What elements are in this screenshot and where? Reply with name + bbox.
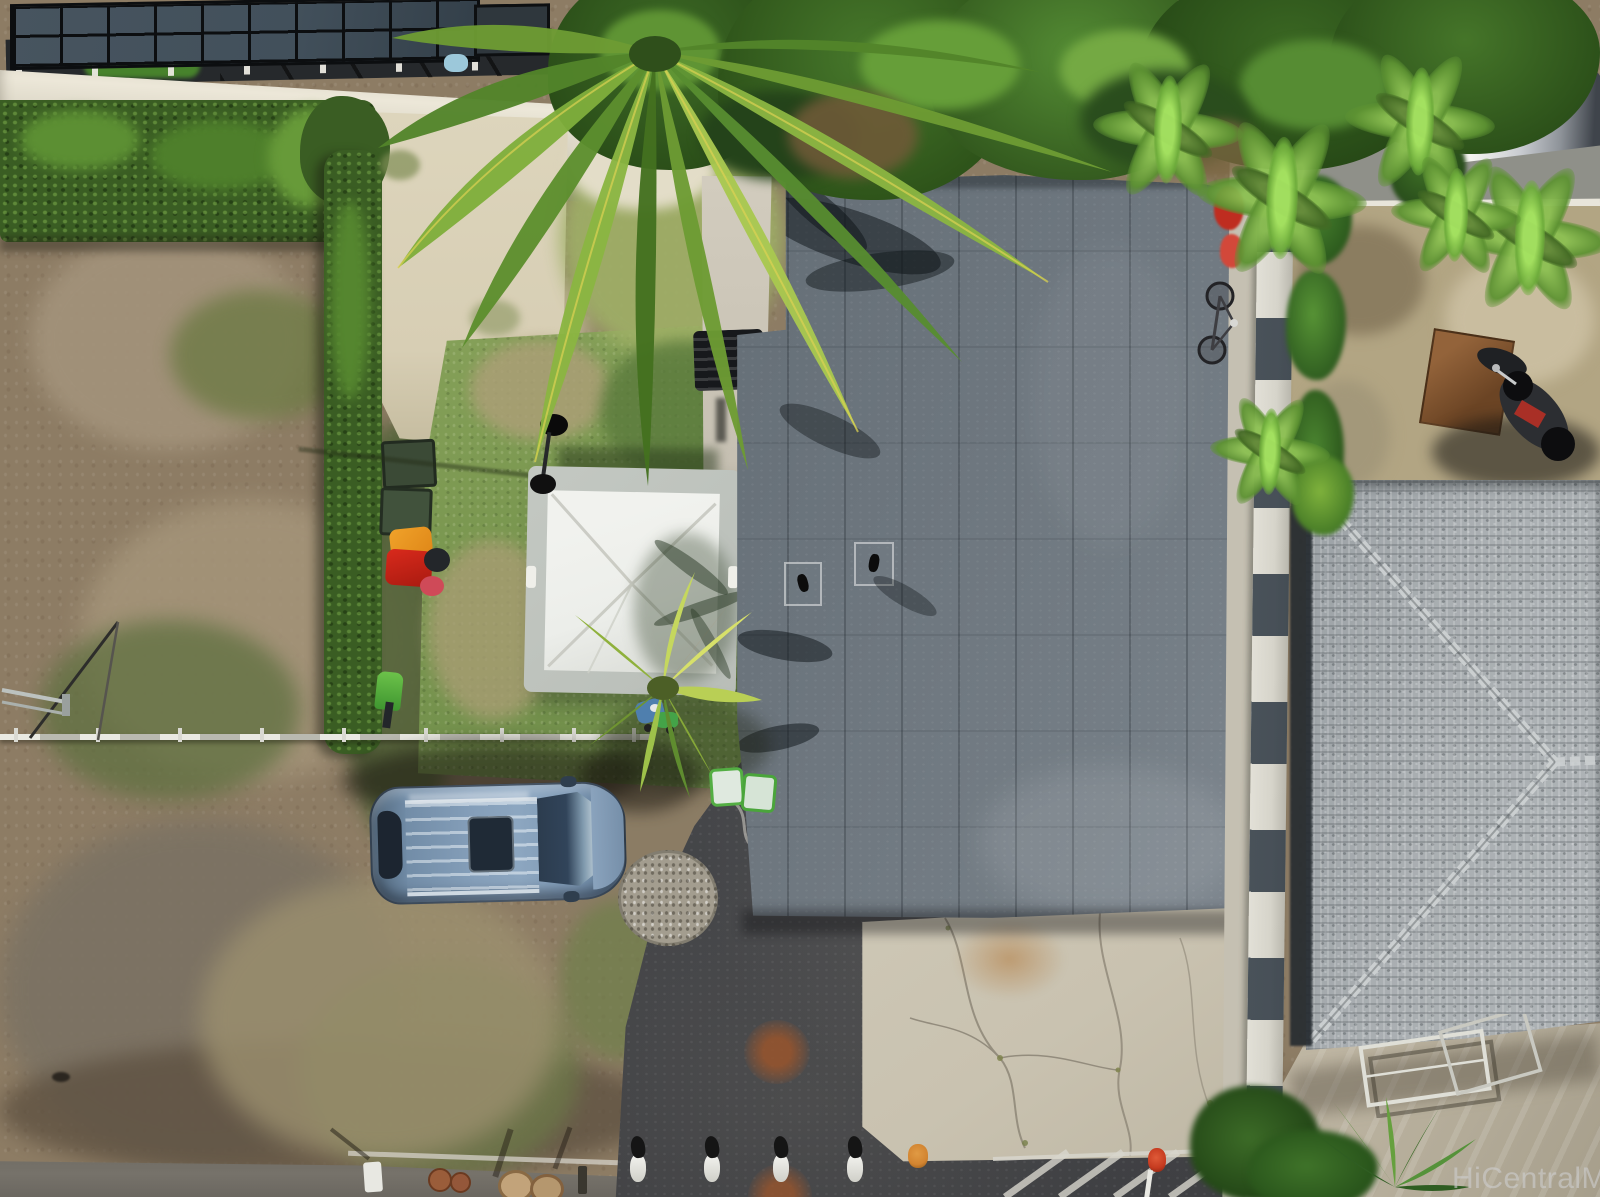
aerial-property-photo: HiCentralMLS — [0, 0, 1600, 1197]
toy-tractor-wheel — [424, 548, 450, 572]
fence-post — [424, 728, 428, 742]
bollard — [847, 1154, 863, 1182]
motorcycle — [1458, 340, 1600, 486]
clay-pot — [450, 1172, 471, 1193]
hedge-highlight — [20, 110, 140, 170]
eave-shadow — [742, 910, 1260, 934]
gravel-patch — [618, 850, 718, 946]
neighbor-shingle-roof — [1306, 480, 1600, 1050]
watermark: HiCentralMLS — [1452, 1162, 1600, 1196]
bollard — [630, 1154, 646, 1182]
car-rear-window — [377, 811, 403, 880]
mailbox — [363, 1161, 383, 1192]
dirt-patch — [200, 880, 560, 1160]
log-stump — [530, 1174, 564, 1197]
roof-ridge-lines — [1306, 480, 1600, 1050]
clay-pot — [428, 1168, 452, 1192]
toy-seat — [420, 576, 444, 596]
gap-shadow — [1290, 480, 1312, 1046]
fence-post — [260, 728, 264, 742]
car-sunroof — [467, 816, 514, 873]
fence-post — [500, 728, 504, 742]
weed-patch — [170, 290, 350, 420]
fence-post — [178, 728, 182, 742]
shrub — [1286, 270, 1346, 380]
log-stump — [498, 1170, 534, 1197]
post — [578, 1166, 587, 1194]
bollard — [773, 1154, 789, 1182]
areca-palm — [1391, 149, 1521, 279]
small-animal-shadow — [52, 1072, 70, 1082]
areca-palm — [1210, 390, 1330, 510]
hedge-shadow — [0, 236, 340, 252]
bollard — [704, 1154, 720, 1182]
metal-gate — [0, 606, 140, 750]
traffic-cone-orange — [908, 1144, 928, 1168]
fence-post — [342, 728, 346, 742]
car-mirror — [563, 891, 579, 902]
bicycle — [1186, 268, 1250, 380]
manhole-stain — [744, 1020, 810, 1084]
traffic-cone-red — [1148, 1148, 1166, 1172]
small-palm — [540, 540, 800, 820]
areca-palm — [1197, 111, 1367, 281]
coconut-palm — [330, 0, 1160, 520]
canopy-tab — [526, 566, 536, 588]
